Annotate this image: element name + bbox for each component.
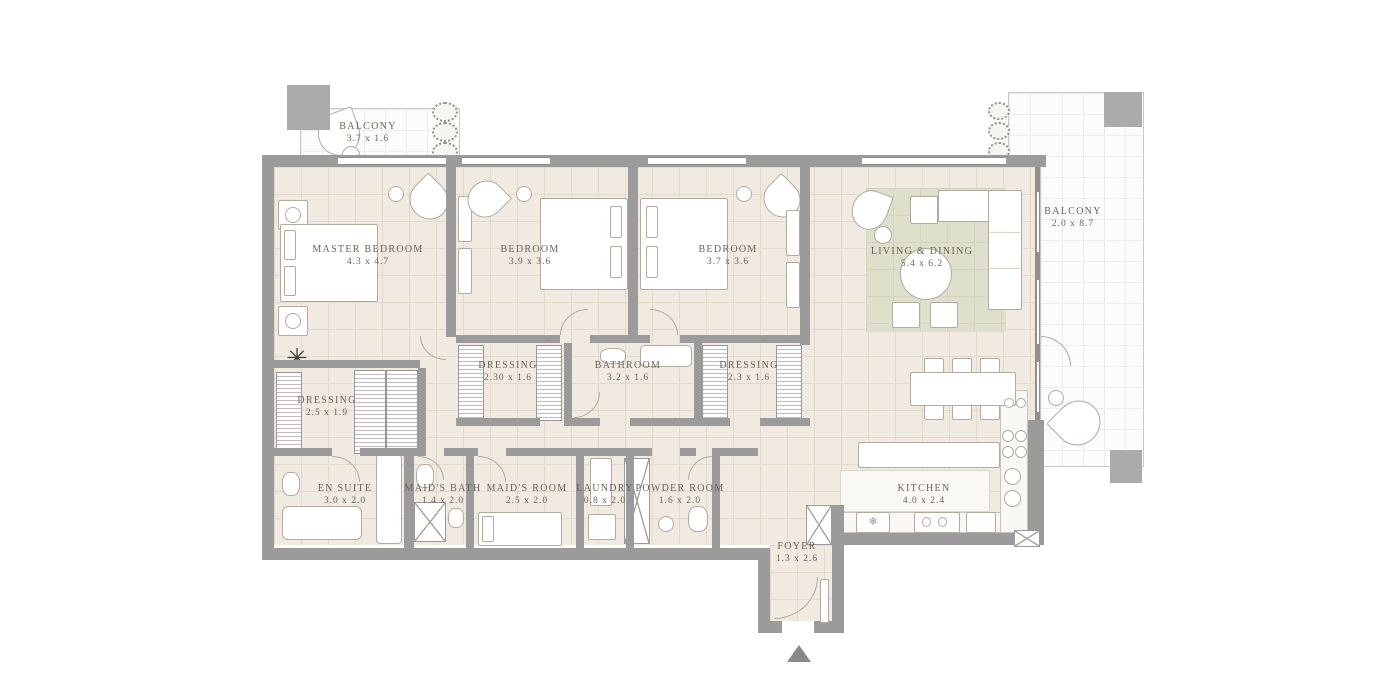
- pillow: [646, 206, 658, 238]
- room-dims: 5.4 x 6.2: [871, 259, 973, 271]
- wardrobe: [776, 345, 802, 421]
- room-name: MAID'S ROOM: [487, 483, 568, 496]
- wall-under-bedrooms: [590, 335, 650, 343]
- room-name: LIVING & DINING: [871, 246, 973, 259]
- room-name: DRESSING: [719, 360, 778, 373]
- room-name: EN SUITE: [318, 483, 373, 496]
- floor-plan: ✳ ❄: [0, 0, 1400, 700]
- window: [338, 157, 446, 165]
- wardrobe: [386, 370, 418, 454]
- washbasin: [658, 516, 674, 532]
- wall-bottom-left: [262, 548, 770, 560]
- sofa-right-section: [988, 190, 1022, 310]
- wall-under-master: [274, 360, 420, 368]
- room-dims: 1.4 x 2.0: [405, 496, 482, 508]
- entrance-arrow-icon: [787, 645, 811, 662]
- wall-under-bedrooms: [456, 335, 560, 343]
- room-label-laundry: LAUNDRY 0.8 x 2.0: [576, 483, 633, 507]
- room-name: BEDROOM: [698, 244, 757, 257]
- room-dims: 3.9 x 3.6: [500, 257, 559, 269]
- room-dims: 4.3 x 4.7: [312, 257, 423, 269]
- wall-foyer-bottom-left: [758, 621, 782, 633]
- toilet: [688, 506, 708, 532]
- room-name: BALCONY: [339, 121, 396, 134]
- room-label-maids-room: MAID'S ROOM 2.5 x 2.0: [487, 483, 568, 507]
- wardrobe-panel: [458, 248, 472, 294]
- lounge-seat: [910, 196, 938, 224]
- room-label-living-dining: LIVING & DINING 5.4 x 6.2: [871, 246, 973, 270]
- room-label-dressing-a: DRESSING 2.30 x 1.6: [478, 360, 537, 384]
- sofa-cushion-line: [990, 232, 1020, 233]
- room-dims: 3.7 x 1.6: [339, 134, 396, 146]
- wall-mid-bottom: [456, 418, 540, 426]
- burner: [1002, 430, 1014, 442]
- room-label-en-suite: EN SUITE 3.0 x 2.0: [318, 483, 373, 507]
- room-label-powder-room: POWDER ROOM 1.6 x 2.0: [635, 483, 724, 507]
- room-dims: 3.2 x 1.6: [595, 373, 662, 385]
- room-name: BATHROOM: [595, 360, 662, 373]
- wall-bath-dressing: [694, 343, 702, 426]
- wardrobe: [536, 345, 562, 421]
- service-shaft: [1014, 530, 1040, 547]
- pillow: [646, 246, 658, 278]
- room-name: MAID'S BATH: [405, 483, 482, 496]
- window: [648, 157, 746, 165]
- planter-icon: [432, 122, 458, 142]
- burner: [1004, 468, 1021, 485]
- wall-mid-bottom: [570, 418, 600, 426]
- pillow: [284, 266, 296, 296]
- side-table: [874, 226, 892, 244]
- ceiling-light: [736, 186, 752, 202]
- room-dims: 2.0 x 8.7: [1044, 219, 1101, 231]
- room-dims: 4.0 x 2.4: [898, 496, 951, 508]
- ottoman: [892, 302, 920, 328]
- room-dims: 2.3 x 1.6: [719, 373, 778, 385]
- room-dims: 0.8 x 2.0: [576, 496, 633, 508]
- column: [287, 85, 330, 130]
- planter-icon: [432, 102, 458, 122]
- wall-mid-bottom: [760, 418, 810, 426]
- room-name: MASTER BEDROOM: [312, 244, 423, 257]
- foyer-closet: [806, 505, 832, 545]
- room-dims: 2.30 x 1.6: [478, 373, 537, 385]
- window: [462, 157, 550, 165]
- wardrobe: [354, 370, 386, 454]
- window: [1036, 280, 1040, 344]
- planter-icon: [988, 122, 1010, 140]
- room-label-kitchen: KITCHEN 4.0 x 2.4: [898, 483, 951, 507]
- kitchen-sink: [914, 512, 960, 533]
- toilet: [282, 472, 300, 496]
- palm-plant-icon: ✳: [282, 344, 312, 374]
- room-dims: 1.3 x 2.6: [776, 554, 818, 566]
- side-table: [1048, 390, 1064, 406]
- wardrobe-panel: [786, 210, 800, 256]
- room-dims: 3.0 x 2.0: [318, 496, 373, 508]
- room-label-master-bedroom: MASTER BEDROOM 4.3 x 4.7: [312, 244, 423, 268]
- sofa-cushion-line: [990, 268, 1020, 269]
- room-label-foyer: FOYER 1.3 x 2.6: [776, 541, 818, 565]
- window: [862, 157, 1006, 165]
- column: [1110, 450, 1142, 483]
- pillow: [482, 516, 494, 542]
- room-label-balcony-right: BALCONY 2.0 x 8.7: [1044, 206, 1101, 230]
- wardrobe-panel: [786, 262, 800, 308]
- shower: [414, 502, 446, 542]
- sink-basin: [922, 517, 931, 527]
- kitchen-counter-right: [1000, 390, 1028, 533]
- burner: [1015, 446, 1027, 458]
- room-label-dressing-master: DRESSING 2.5 x 1.9: [297, 395, 356, 419]
- room-name: BALCONY: [1044, 206, 1101, 219]
- room-label-maids-bath: MAID'S BATH 1.4 x 2.0: [405, 483, 482, 507]
- dining-table: [910, 372, 1016, 406]
- wall-bedroom-a-b: [628, 167, 638, 337]
- washbasin: [448, 508, 464, 528]
- ottoman: [930, 302, 958, 328]
- burner: [1015, 430, 1027, 442]
- column: [1104, 92, 1142, 127]
- pillow: [610, 246, 622, 278]
- fixture: [1004, 398, 1014, 408]
- wall-foyer-right: [832, 505, 844, 633]
- wall-kitchen-bottom: [832, 533, 1044, 545]
- room-label-dressing-b: DRESSING 2.3 x 1.6: [719, 360, 778, 384]
- room-label-balcony-top: BALCONY 3.7 x 1.6: [339, 121, 396, 145]
- bathtub: [282, 506, 362, 540]
- room-name: DRESSING: [297, 395, 356, 408]
- room-dims: 3.7 x 3.6: [698, 257, 757, 269]
- burner: [1002, 446, 1014, 458]
- room-dims: 1.6 x 2.0: [635, 496, 724, 508]
- wall-left: [262, 155, 274, 560]
- wall-bottom-row-top: [680, 448, 696, 456]
- nightstand: [278, 306, 308, 336]
- wall-mid-bottom: [630, 418, 730, 426]
- pillow: [284, 230, 296, 260]
- oven: [966, 512, 996, 533]
- room-name: POWDER ROOM: [635, 483, 724, 496]
- wall-under-bedrooms: [680, 335, 800, 343]
- washing-machine: [588, 514, 616, 540]
- entry-door-leaf: [820, 579, 829, 623]
- room-name: BEDROOM: [500, 244, 559, 257]
- wall-master-bedroom-a: [446, 167, 456, 337]
- room-label-bathroom: BATHROOM 3.2 x 1.6: [595, 360, 662, 384]
- room-name: FOYER: [776, 541, 818, 554]
- room-name: LAUNDRY: [576, 483, 633, 496]
- wall-dressing-master-right: [418, 368, 426, 456]
- wall-bottom-row-top: [274, 448, 332, 456]
- sink-basin: [938, 517, 947, 527]
- burner: [1004, 490, 1021, 507]
- room-dims: 2.5 x 1.9: [297, 408, 356, 420]
- room-label-bedroom-b: BEDROOM 3.7 x 3.6: [698, 244, 757, 268]
- wall-bedroom-b-living: [800, 167, 810, 345]
- pillow: [610, 206, 622, 238]
- door-pocket: [376, 454, 402, 544]
- room-name: KITCHEN: [898, 483, 951, 496]
- ceiling-light: [516, 186, 532, 202]
- wall-living-right: [1028, 420, 1044, 533]
- side-table: [388, 186, 404, 202]
- room-name: DRESSING: [478, 360, 537, 373]
- fixture: [1016, 398, 1026, 408]
- room-label-bedroom-a: BEDROOM 3.9 x 3.6: [500, 244, 559, 268]
- window: [1036, 192, 1040, 252]
- planter-icon: [988, 102, 1010, 120]
- room-dims: 2.5 x 2.0: [487, 496, 568, 508]
- freezer-icon: ❄: [866, 515, 880, 529]
- window: [1036, 362, 1040, 412]
- kitchen-island: [858, 442, 1000, 468]
- wall-dressing-bath: [564, 343, 572, 426]
